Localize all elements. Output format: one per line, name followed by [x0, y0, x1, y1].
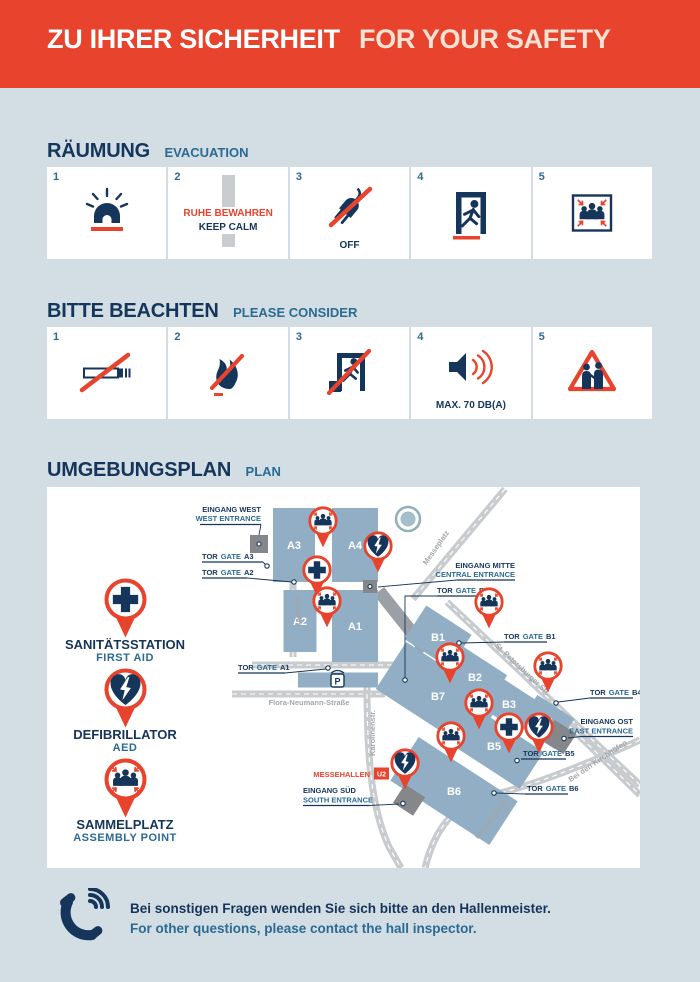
evacuation-section-title: RÄUMUNG EVACUATION: [47, 140, 249, 163]
consider-title-en: PLEASE CONSIDER: [233, 305, 357, 320]
gate-word-de: TOR: [437, 586, 453, 595]
header-banner: ZU IHRER SICHERHEIT FOR YOUR SAFETY: [0, 0, 700, 88]
keep-calm-de: RUHE BEWAHREN: [168, 208, 287, 219]
evacuation-steps-row: 1 2 RUHE BEWAHREN KEEP CALM 3: [47, 167, 652, 259]
gate-id: A1: [280, 663, 290, 672]
hall-label-b1: B1: [431, 632, 445, 644]
station-name: MESSEHALLEN: [313, 770, 370, 779]
gate-word-de: TOR: [590, 688, 606, 697]
u2-line-badge: U2: [377, 772, 386, 779]
evac-step-1: 1: [47, 167, 166, 259]
svg-text:TORGATEA2: TORGATEA2: [202, 568, 254, 577]
rule-number: 2: [174, 331, 180, 343]
svg-text:TORGATEB5: TORGATEB5: [523, 749, 575, 758]
gate-id: B4: [632, 688, 640, 697]
assembly-point-icon: [561, 182, 623, 244]
first-aid-pin-icon: [100, 574, 151, 643]
site-map: A3A4A2A1B1B2B3B4B7B5B6 P Lagerstr. Messe…: [47, 487, 640, 868]
entrance-central-en: CENTRAL ENTRANCE: [436, 570, 515, 579]
rule-number: 4: [417, 331, 423, 343]
gate-word-de: TOR: [238, 663, 254, 672]
gate-word-en: GATE: [546, 784, 566, 793]
rule-4: 4 MAX. 70 DB(A): [411, 327, 530, 419]
beware-pickpockets-icon: [560, 341, 624, 405]
hall-label-a1: A1: [348, 621, 362, 633]
rule-1: 1: [47, 327, 166, 419]
gate-word-en: GATE: [257, 663, 277, 672]
rule-2: 2: [168, 327, 287, 419]
gate-word-en: GATE: [542, 749, 562, 758]
page-title-en: FOR YOUR SAFETY: [359, 24, 611, 54]
hall-label-a3: A3: [287, 540, 301, 552]
entrance-west: EINGANG WEST WEST ENTRANCE: [196, 505, 268, 553]
power-off-plug-icon: [319, 176, 381, 238]
rule-number: 5: [539, 331, 545, 343]
gate-word-de: TOR: [202, 552, 218, 561]
step-number: 2: [174, 171, 180, 183]
evacuation-title-de: RÄUMUNG: [47, 140, 150, 162]
step-number: 3: [296, 171, 302, 183]
entrance-west-en: WEST ENTRANCE: [196, 514, 261, 523]
page-title: ZU IHRER SICHERHEIT FOR YOUR SAFETY: [47, 24, 611, 55]
entrance-central-de: EINGANG MITTE: [455, 561, 515, 570]
svg-text:TORGATEB6: TORGATEB6: [527, 784, 579, 793]
step-number: 1: [53, 171, 59, 183]
plan-section-title: UMGEBUNGSPLAN PLAN: [47, 459, 281, 482]
evac-step-5: 5: [533, 167, 652, 259]
defibrillator-pin-icon: [100, 664, 151, 733]
gate-word-de: TOR: [527, 784, 543, 793]
safety-poster: ZU IHRER SICHERHEIT FOR YOUR SAFETY RÄUM…: [0, 0, 700, 982]
gate-b4: TORGATEB4: [554, 688, 640, 705]
rule-number: 3: [296, 331, 302, 343]
evac-step-4: 4: [411, 167, 530, 259]
street-flora-neumann: Flora-Neumann-Straße: [269, 698, 350, 707]
footer-note-en: For other questions, please contact the …: [130, 921, 477, 936]
keep-exits-clear-icon: [318, 341, 382, 405]
exclamation-bar-icon: [222, 175, 235, 207]
svg-text:TORGATEB1: TORGATEB1: [504, 632, 556, 641]
legend-assembly-en: ASSEMBLY POINT: [45, 832, 205, 844]
no-smoking-icon: [75, 341, 139, 405]
gate-word-en: GATE: [523, 632, 543, 641]
legend-defibrillator-de: DEFIBRILLATOR: [45, 727, 205, 742]
hall-label-b3: B3: [502, 699, 516, 711]
hall-label-b2: B2: [468, 672, 482, 684]
legend-defibrillator-en: AED: [45, 742, 205, 754]
gate-word-en: GATE: [221, 568, 241, 577]
messeplatz-circle-landmark: [396, 507, 420, 531]
hall-label-b5: B5: [487, 741, 501, 753]
street-lagerstr: Lagerstr.: [293, 595, 302, 627]
volume-limit-label: MAX. 70 DB(A): [411, 400, 530, 411]
consider-section-title: BITTE BEACHTEN PLEASE CONSIDER: [47, 300, 357, 323]
gate-word-en: GATE: [221, 552, 241, 561]
volume-limit-icon: [440, 342, 502, 392]
gate-word-en: GATE: [609, 688, 629, 697]
legend-first-aid-de: SANITÄTSSTATION: [45, 637, 205, 652]
rule-number: 1: [53, 331, 59, 343]
evac-step-3: 3 OFF: [290, 167, 409, 259]
consider-rules-row: 1 2 3: [47, 327, 652, 419]
consider-title-de: BITTE BEACHTEN: [47, 300, 219, 322]
plan-title-de: UMGEBUNGSPLAN: [47, 459, 231, 481]
gate-id: B5: [565, 749, 575, 758]
gate-id: A3: [244, 552, 254, 561]
hall-label-a4: A4: [348, 540, 363, 552]
assembly-pin-icon: [100, 754, 151, 823]
emergency-exit-icon: [440, 182, 502, 244]
legend-first-aid-en: FIRST AID: [45, 652, 205, 664]
hall-label-b7: B7: [431, 691, 445, 703]
street-karolinenstr: Karolinenstr.: [368, 710, 377, 756]
entrance-east-de: EINGANG OST: [580, 717, 633, 726]
entrance-south-en: SOUTH ENTRANCE: [303, 796, 373, 805]
entrance-south-de: EINGANG SÜD: [303, 786, 357, 795]
exclamation-dot-icon: [222, 234, 235, 247]
rule-3: 3: [290, 327, 409, 419]
evac-step-2: 2 RUHE BEWAHREN KEEP CALM: [168, 167, 287, 259]
step-number: 4: [417, 171, 423, 183]
u2-station-label: MESSEHALLEN U2: [313, 768, 389, 780]
gate-word-de: TOR: [504, 632, 520, 641]
phone-icon: [50, 888, 112, 950]
gate-word-en: GATE: [456, 586, 476, 595]
entrance-south: EINGANG SÜD SOUTH ENTRANCE: [303, 784, 425, 816]
parking-letter: P: [334, 677, 340, 687]
entrance-east-en: EAST ENTRANCE: [569, 727, 633, 736]
gate-id: B1: [546, 632, 556, 641]
legend-defibrillator: DEFIBRILLATOR AED: [45, 727, 205, 754]
legend-first-aid: SANITÄTSSTATION FIRST AID: [45, 637, 205, 664]
keep-calm-en: KEEP CALM: [168, 222, 287, 233]
step-number: 5: [539, 171, 545, 183]
off-label: OFF: [290, 240, 409, 251]
plan-title-en: PLAN: [246, 464, 281, 479]
map-pin-assembly: [476, 589, 502, 629]
svg-text:TORGATEA3: TORGATEA3: [202, 552, 254, 561]
gate-word-de: TOR: [523, 749, 539, 758]
gate-a3: TORGATEA3: [202, 552, 269, 568]
rule-5: 5: [533, 327, 652, 419]
page-title-de: ZU IHRER SICHERHEIT: [47, 24, 340, 54]
no-open-fire-icon: [196, 341, 260, 405]
gate-word-de: TOR: [202, 568, 218, 577]
evacuation-title-en: EVACUATION: [165, 145, 249, 160]
gate-b1: TORGATEB1: [457, 632, 556, 645]
footer-note-de: Bei sonstigen Fragen wenden Sie sich bit…: [130, 901, 551, 916]
svg-text:TORGATEB4: TORGATEB4: [590, 688, 640, 697]
legend-assembly: SAMMELPLATZ ASSEMBLY POINT: [45, 817, 205, 844]
siren-alarm-icon: [76, 182, 138, 244]
entrance-west-de: EINGANG WEST: [202, 505, 261, 514]
gate-id: B6: [569, 784, 579, 793]
gate-id: A2: [244, 568, 254, 577]
svg-text:TORGATEA1: TORGATEA1: [238, 663, 290, 672]
hall-label-b6: B6: [447, 786, 461, 798]
legend-assembly-de: SAMMELPLATZ: [45, 817, 205, 832]
